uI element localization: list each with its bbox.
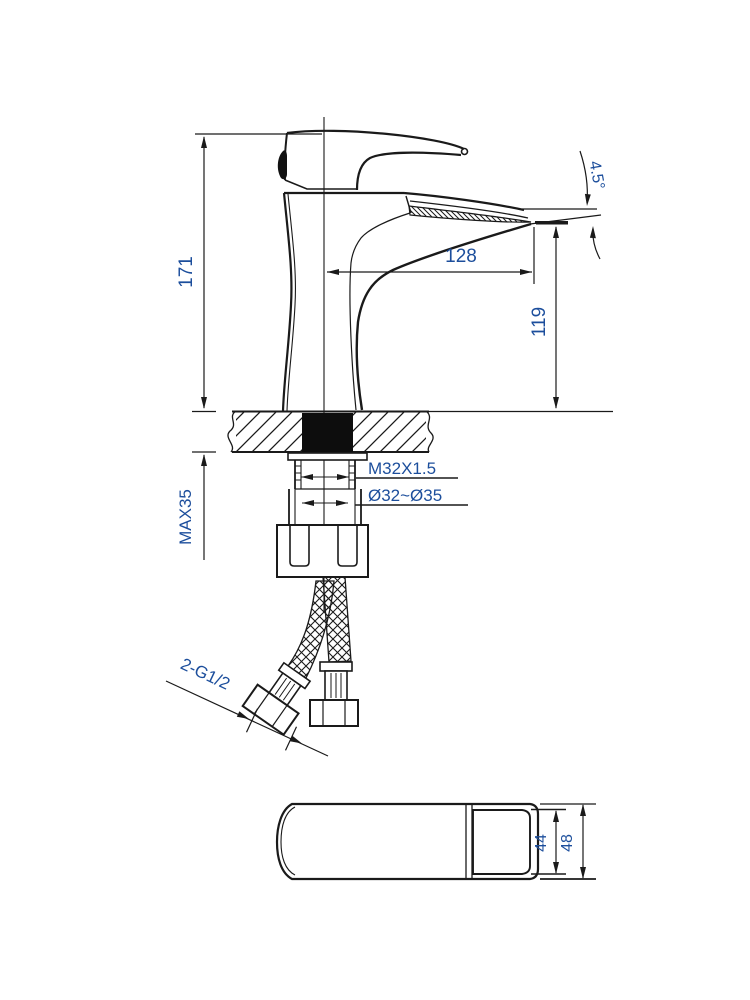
dim-text-max35: MAX35	[176, 489, 195, 545]
side-view-faucet	[228, 117, 613, 735]
supply-hoses	[243, 577, 358, 735]
drawing-sheet: 171 MAX35 128 119	[0, 0, 750, 1000]
faucet-handle	[278, 131, 468, 190]
rubber-gasket	[302, 413, 353, 452]
faucet-dimension-drawing: 171 MAX35 128 119	[0, 0, 750, 1000]
dim-text-48: 48	[559, 834, 576, 852]
dim-max-deck-thickness: MAX35	[176, 412, 216, 561]
dim-overall-height: 171	[176, 134, 322, 409]
hose-hex-nut-right	[310, 700, 358, 726]
dim-text-hole: Ø32~Ø35	[368, 486, 442, 505]
dim-text-128: 128	[445, 246, 477, 267]
mounting-shank	[277, 453, 368, 577]
handle-detail-dot	[278, 150, 287, 179]
top-view: 44 48	[277, 804, 596, 879]
dim-text-119: 119	[529, 307, 550, 337]
dim-text-angle: 4.5°	[586, 160, 608, 191]
dim-text-44: 44	[533, 834, 550, 852]
dim-text-171: 171	[176, 256, 197, 288]
top-view-dimensions: 44 48	[531, 804, 596, 879]
dim-text-g12: 2-G1/2	[178, 654, 233, 693]
dim-text-m32: M32X1.5	[368, 459, 436, 478]
countertop-section	[228, 411, 613, 452]
dim-outlet-angle: 4.5°	[522, 151, 607, 259]
top-view-outline	[277, 804, 538, 879]
faucet-body	[283, 193, 568, 411]
